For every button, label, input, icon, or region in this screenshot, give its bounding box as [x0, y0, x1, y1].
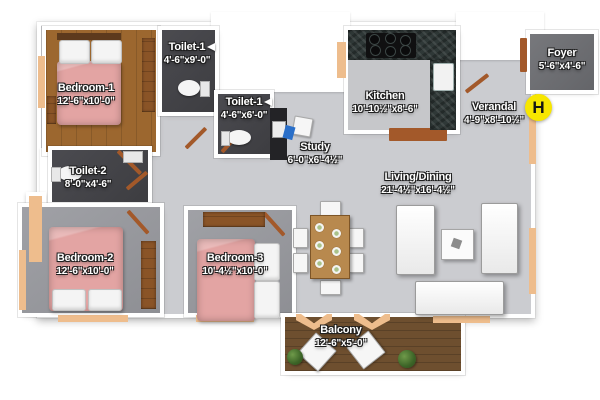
door-arrow-icon: [207, 43, 215, 51]
wardrobe: [203, 212, 265, 227]
burner-icon: [386, 34, 395, 43]
room-label-foyer: Foyer 5'-6"x4'-6": [522, 46, 600, 73]
window: [433, 316, 490, 323]
room-label-bedroom-2: Bedroom-2 12'-6"x10'-0": [25, 251, 145, 278]
room-name: Study: [275, 140, 355, 154]
room-dims: 6'-0"x6'-4½": [275, 154, 355, 167]
plate-icon: [332, 265, 341, 274]
dining-chair: [320, 201, 341, 216]
room-label-bedroom-3: Bedroom-3 10'-4½"x10'-0": [165, 251, 305, 278]
room-label-study: Study 6'-0"x6'-4½": [275, 140, 355, 167]
room-dims: 10'-10½"x8'-6": [325, 103, 445, 116]
kitchen-sink: [433, 63, 454, 91]
room-dims: 12'-6"x10'-0": [26, 95, 146, 108]
plate-icon: [315, 259, 324, 268]
window: [529, 228, 536, 294]
bed-headboard: [57, 33, 121, 40]
room-label-kitchen: Kitchen 10'-10½"x8'-6": [325, 89, 445, 116]
room-label-toilet-1-top: Toilet-1 4'-6"x9'-0": [147, 40, 227, 67]
sofa: [415, 281, 504, 315]
burner-icon: [386, 47, 395, 56]
room-name: Bedroom-1: [26, 81, 146, 95]
room-dims: 8'-0"x4'-6": [48, 178, 128, 191]
room-name: Foyer: [522, 46, 600, 60]
room-name: Kitchen: [325, 89, 445, 103]
plate-icon: [332, 229, 341, 238]
dining-chair: [349, 228, 364, 248]
plant-icon: [398, 350, 416, 368]
window: [337, 42, 346, 78]
room-name: Bedroom-3: [165, 251, 305, 265]
window: [58, 315, 128, 322]
plate-icon: [315, 223, 324, 232]
room-name: Living/Dining: [348, 170, 488, 184]
room-dims: 4'-6"x9'-0": [147, 54, 227, 67]
room-name: Bedroom-2: [25, 251, 145, 265]
dining-chair: [320, 280, 341, 295]
h-marker-badge: H: [525, 94, 552, 121]
plant-icon: [287, 349, 303, 365]
pillow: [52, 289, 86, 311]
plate-icon: [315, 241, 324, 250]
room-dims: 10'-4½"x10'-0": [165, 265, 305, 278]
pillow: [59, 40, 90, 64]
wall-notch: [211, 12, 350, 92]
room-label-toilet-2: Toilet-2 8'-0"x4'-6": [48, 164, 128, 191]
burner-icon: [401, 36, 410, 45]
plate-icon: [332, 247, 341, 256]
burner-icon: [370, 35, 379, 44]
room-dims: 4'-6"x6'-0": [204, 109, 284, 122]
room-dims: 21'-4½"x16'-4½": [348, 184, 488, 197]
burner-icon: [371, 46, 380, 55]
floor-plan: Bedroom-1 12'-6"x10'-0" Toilet-1 4'-6"x9…: [0, 0, 600, 400]
dining-chair: [349, 253, 364, 273]
room-name: Toilet-2: [48, 164, 128, 178]
room-name: Toilet-1: [204, 95, 284, 109]
sofa: [396, 205, 435, 275]
room-dims: 12'-6"x10'-0": [25, 265, 145, 278]
washbasin: [123, 151, 143, 163]
toilet-tank: [221, 131, 230, 146]
room-dims: 5'-6"x4'-6": [522, 60, 600, 73]
toilet-fixture: [178, 80, 200, 96]
room-label-living-dining: Living/Dining 21'-4½"x16'-4½": [348, 170, 488, 197]
room-label-bedroom-1: Bedroom-1 12'-6"x10'-0": [26, 81, 146, 108]
pillow: [254, 281, 280, 319]
door-arrow-icon: [264, 98, 272, 106]
sofa: [481, 203, 518, 274]
pillow: [91, 40, 122, 64]
room-dims: 12'-6"x5'-0": [281, 337, 401, 350]
room-name: Toilet-1: [147, 40, 227, 54]
room-label-toilet-1-mid: Toilet-1 4'-6"x6'-0": [204, 95, 284, 122]
pillow: [88, 289, 122, 311]
burner-icon: [401, 46, 410, 55]
room-label-balcony: Balcony 12'-6"x5'-0": [281, 323, 401, 350]
dining-chair: [293, 228, 308, 248]
toilet-fixture: [227, 130, 251, 145]
room-name: Balcony: [281, 323, 401, 337]
